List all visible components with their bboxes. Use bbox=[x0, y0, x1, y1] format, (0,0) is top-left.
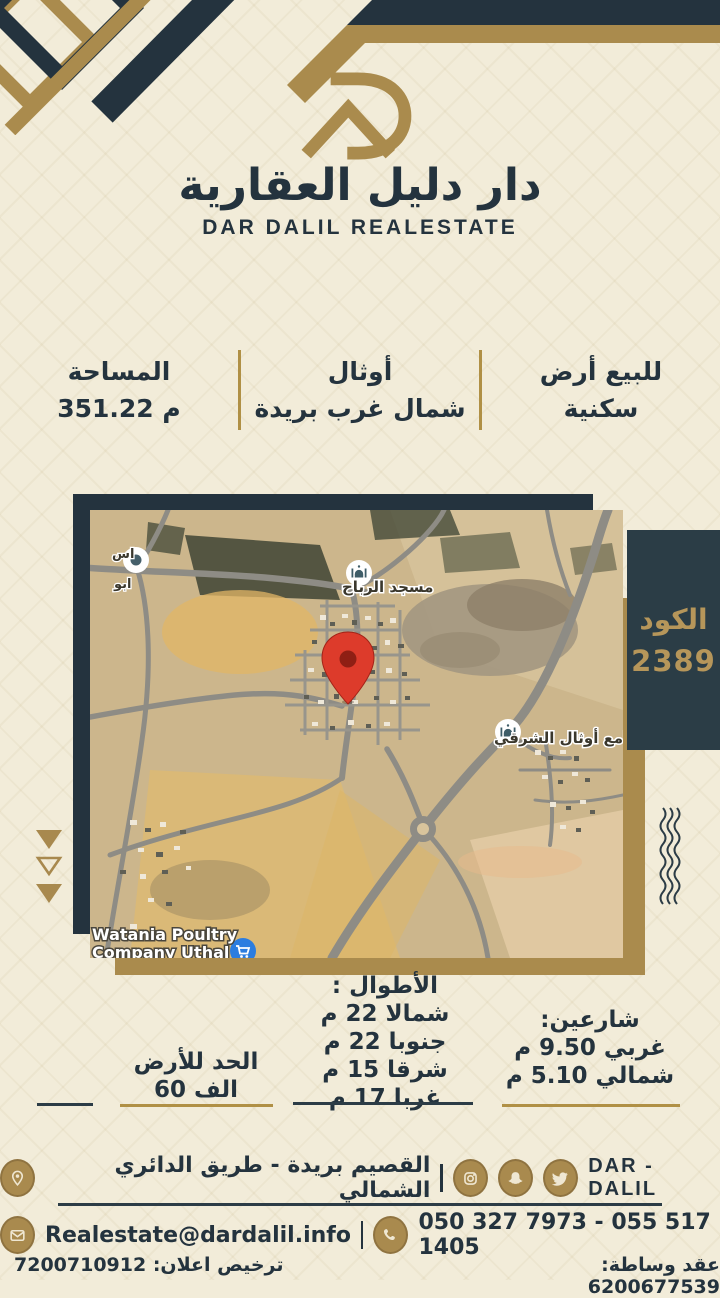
length-north: شمالا 22 م bbox=[280, 1000, 490, 1028]
listing-line1: للبيع أرض bbox=[482, 353, 720, 391]
snapchat-icon[interactable] bbox=[498, 1159, 533, 1197]
footer-address: القصيم بريدة - طريق الدائري الشمالي bbox=[45, 1153, 430, 1203]
price-label: الحد للأرض bbox=[96, 1048, 296, 1076]
triangle-decoration bbox=[34, 830, 64, 910]
streets-title: شارعين: bbox=[490, 1006, 690, 1034]
license-ad: ترخيص اعلان: 7200710912 bbox=[14, 1254, 284, 1276]
triangle-filled-icon bbox=[36, 830, 62, 849]
phone-icon[interactable] bbox=[373, 1216, 408, 1254]
dar-dalil-monogram-icon bbox=[299, 72, 421, 160]
map-label-poultry-1: Watania Poultry bbox=[92, 925, 238, 944]
price-underline bbox=[120, 1104, 273, 1107]
footer-contact-row: Realestate@dardalil.info 050 327 7973 - … bbox=[0, 1214, 720, 1256]
price-block: الحد للأرض 60 الف bbox=[96, 1048, 296, 1104]
location-line2: شمال غرب بريدة bbox=[241, 390, 479, 428]
footer-phones[interactable]: 050 327 7973 - 055 517 1405 bbox=[418, 1210, 720, 1260]
footer-divider-bar bbox=[361, 1221, 364, 1249]
footer-address-row: القصيم بريدة - طريق الدائري الشمالي DAR … bbox=[0, 1156, 720, 1200]
code-label: الكود bbox=[639, 603, 707, 636]
listing-column: للبيع أرض سكنية bbox=[482, 353, 720, 428]
location-line1: أوثال bbox=[241, 353, 479, 391]
map-label-mosque-north: مسجد الرباح bbox=[342, 578, 433, 596]
logo-block: دار دليل العقارية DAR DALIL REALESTATE bbox=[0, 72, 720, 240]
code-value: 2389 bbox=[631, 644, 716, 678]
map-label-edge-2: ابو bbox=[113, 577, 132, 592]
street-north: شمالي 5.10 م bbox=[490, 1062, 690, 1090]
footer-divider-line bbox=[58, 1203, 662, 1206]
navy-top-band bbox=[347, 0, 720, 25]
brand-title-arabic: دار دليل العقارية bbox=[0, 162, 720, 210]
lengths-title: الأطوال : bbox=[280, 972, 490, 1000]
area-value: 351.22 م bbox=[0, 390, 238, 428]
envelope-icon[interactable] bbox=[0, 1216, 35, 1254]
area-column: المساحة 351.22 م bbox=[0, 353, 238, 428]
license-contract: عقد وساطة: 6200677539 bbox=[470, 1254, 720, 1298]
info-bar: المساحة 351.22 م أوثال شمال غرب بريدة لل… bbox=[0, 344, 720, 436]
length-west: غربا 17 م bbox=[280, 1084, 490, 1112]
streets-underline bbox=[502, 1104, 680, 1107]
triangle-outline-icon bbox=[38, 858, 60, 874]
flyer-page: دار دليل العقارية DAR DALIL REALESTATE ا… bbox=[0, 0, 720, 1280]
satellite-map: مسجد الرباح جامع أوثال الشرقي اس ابو Wat… bbox=[90, 510, 623, 958]
location-column: أوثال شمال غرب بريدة bbox=[241, 353, 479, 428]
triangle-filled-icon bbox=[36, 884, 62, 903]
footer-divider-bar bbox=[440, 1164, 443, 1192]
instagram-icon[interactable] bbox=[453, 1159, 488, 1197]
footer-brand-name: DAR - DALIL bbox=[588, 1155, 720, 1201]
lengths-block: الأطوال : شمالا 22 م جنوبا 22 م شرقا 15 … bbox=[280, 972, 490, 1112]
code-badge: الكود 2389 bbox=[627, 530, 720, 750]
streets-block: شارعين: غربي 9.50 م شمالي 5.10 م bbox=[490, 1006, 690, 1090]
wave-lines-decoration bbox=[658, 806, 684, 906]
footer-email[interactable]: Realestate@dardalil.info bbox=[45, 1223, 351, 1248]
length-south: جنوبا 22 م bbox=[280, 1028, 490, 1056]
map-label-poultry-2: Company Uthal bbox=[92, 943, 229, 958]
street-west: غربي 9.50 م bbox=[490, 1034, 690, 1062]
price-value: 60 الف bbox=[96, 1076, 296, 1104]
map-label-mosque-east: جامع أوثال الشرقي bbox=[494, 728, 623, 747]
listing-line2: سكنية bbox=[482, 390, 720, 428]
map-label-edge-1: اس bbox=[112, 547, 134, 562]
area-label: المساحة bbox=[0, 353, 238, 391]
twitter-icon[interactable] bbox=[543, 1159, 578, 1197]
brand-title-english: DAR DALIL REALESTATE bbox=[0, 216, 720, 240]
length-east: شرقا 15 م bbox=[280, 1056, 490, 1084]
lengths-underline bbox=[293, 1102, 473, 1105]
left-dash-decoration bbox=[37, 1103, 93, 1106]
location-pin-icon bbox=[0, 1159, 35, 1197]
roundabout bbox=[414, 820, 433, 839]
